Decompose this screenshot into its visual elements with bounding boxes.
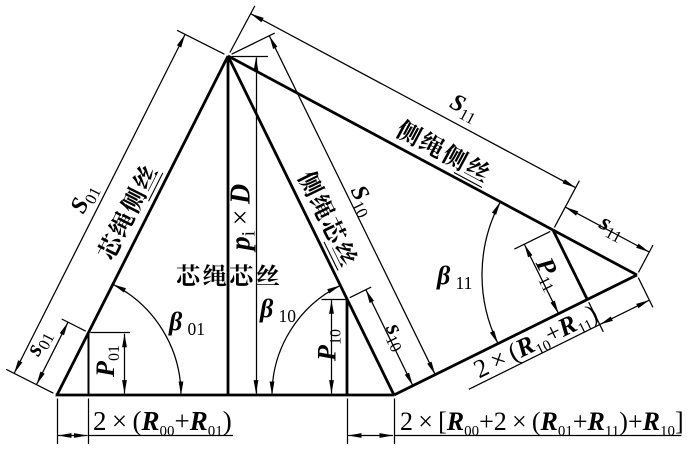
svg-text:pi × D: pi × D bbox=[226, 184, 260, 253]
svg-text:2 × [R00+2 × (R01+R11)+R10]: 2 × [R00+2 × (R01+R11)+R10] bbox=[400, 407, 684, 440]
